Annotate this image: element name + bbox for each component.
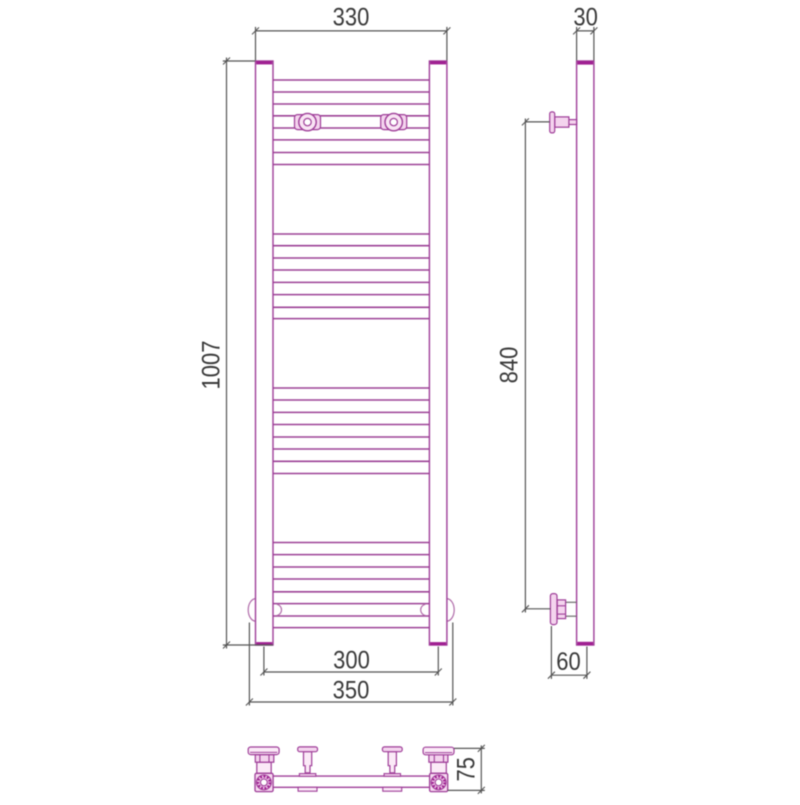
svg-text:300: 300: [333, 646, 370, 674]
svg-text:840: 840: [495, 347, 523, 384]
svg-text:30: 30: [573, 3, 597, 31]
svg-text:1007: 1007: [197, 341, 225, 390]
svg-text:350: 350: [333, 676, 370, 704]
svg-text:60: 60: [556, 648, 580, 676]
svg-text:330: 330: [333, 3, 370, 31]
svg-text:75: 75: [452, 757, 480, 781]
